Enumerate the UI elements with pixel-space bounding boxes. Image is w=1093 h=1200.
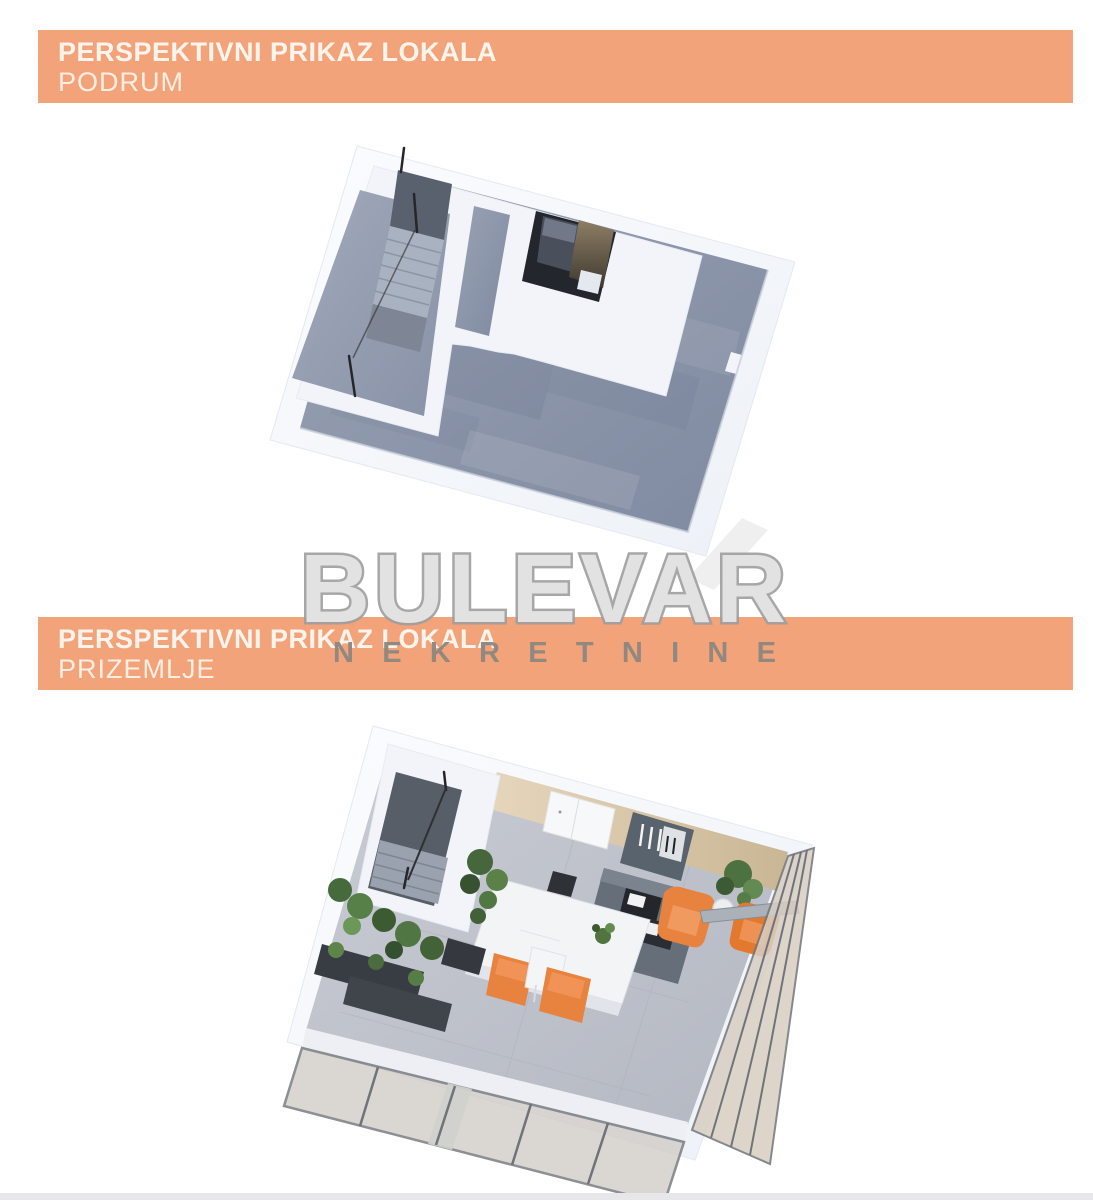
footer-strip (0, 1193, 1093, 1200)
header-basement: PERSPEKTIVNI PRIKAZ LOKALA PODRUM (38, 30, 1073, 103)
basement-floorplan (270, 146, 795, 556)
header-basement-title: PERSPEKTIVNI PRIKAZ LOKALA (58, 37, 1073, 68)
header-ground-floor-title: PERSPEKTIVNI PRIKAZ LOKALA (58, 624, 1073, 655)
ground-floorplan (284, 726, 814, 1200)
page: PERSPEKTIVNI PRIKAZ LOKALA PODRUM PERSPE… (0, 0, 1093, 1200)
header-ground-floor: PERSPEKTIVNI PRIKAZ LOKALA PRIZEMLJE (38, 617, 1073, 690)
floorplan-canvas (0, 0, 1093, 1200)
header-basement-subtitle: PODRUM (58, 68, 1073, 97)
header-ground-floor-subtitle: PRIZEMLJE (58, 655, 1073, 684)
